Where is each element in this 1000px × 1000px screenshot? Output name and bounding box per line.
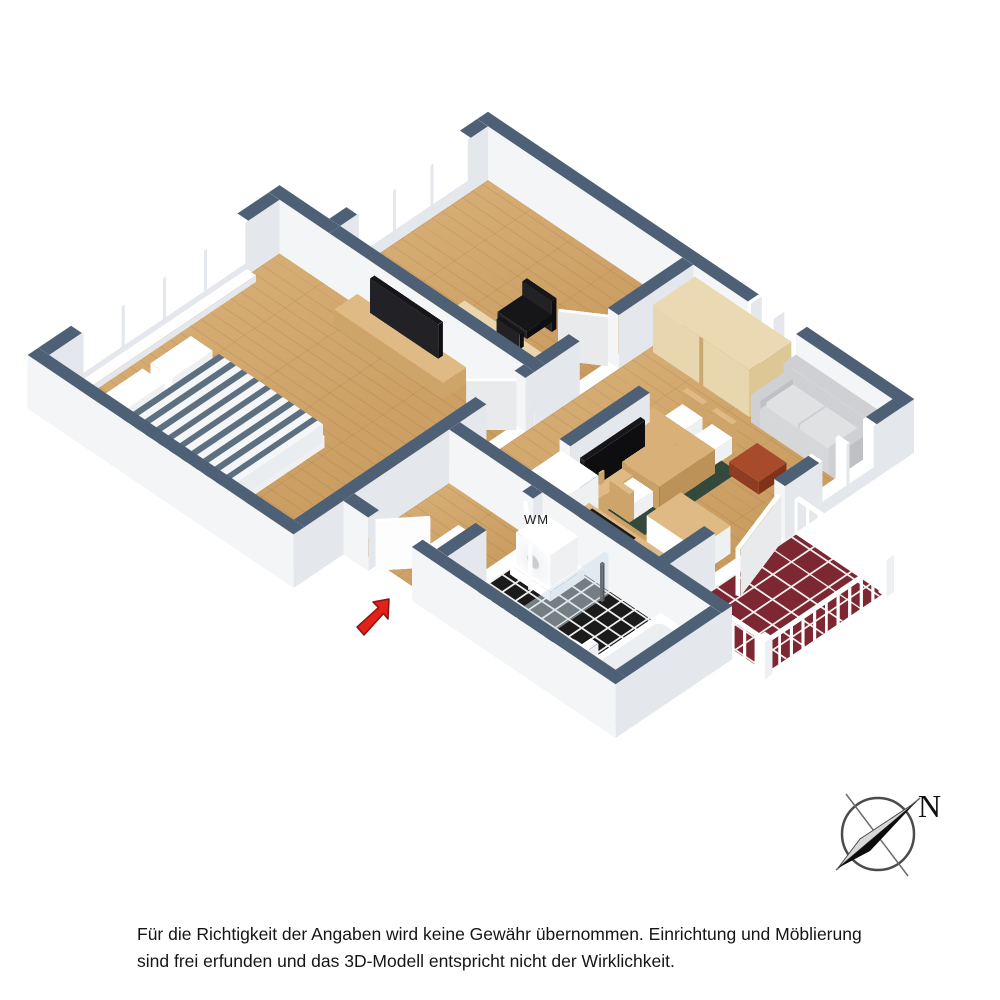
box-face — [393, 188, 396, 244]
box-face — [721, 606, 732, 667]
washing-machine-label: WM — [524, 512, 549, 527]
box-face — [751, 395, 760, 429]
compass-north-label: N — [918, 788, 941, 825]
box-face — [616, 677, 627, 738]
box-face — [294, 527, 305, 588]
box-face — [525, 372, 534, 432]
floorplan-scene: WM N Für die Richtigkeit der Angaben wir… — [0, 0, 1000, 1000]
box-face — [468, 138, 471, 194]
box-face — [847, 443, 850, 499]
box-face — [608, 308, 619, 369]
box-face — [630, 491, 635, 523]
box-face — [535, 365, 546, 426]
box-face — [886, 555, 894, 598]
compass-rose-icon — [830, 786, 926, 887]
entrance-arrow-icon — [350, 596, 392, 643]
disclaimer-line1: Für die Richtigkeit der Angaben wird kei… — [137, 924, 862, 944]
box-face — [602, 563, 604, 602]
wall-segment — [616, 659, 722, 730]
disclaimer-line2: sind frei erfunden und das 3D-Modell ent… — [137, 951, 675, 971]
balcony-post — [757, 669, 773, 679]
box-face — [757, 637, 765, 680]
box-face — [552, 298, 557, 332]
disclaimer-text: Für die Richtigkeit der Angaben wird kei… — [137, 921, 937, 975]
box-face — [204, 249, 207, 305]
box-face — [732, 421, 737, 453]
wall-segment — [343, 547, 379, 571]
box-face — [819, 461, 822, 517]
box-face — [765, 637, 773, 680]
box-face — [438, 322, 443, 359]
box-face — [528, 541, 532, 590]
box-face — [430, 163, 433, 219]
